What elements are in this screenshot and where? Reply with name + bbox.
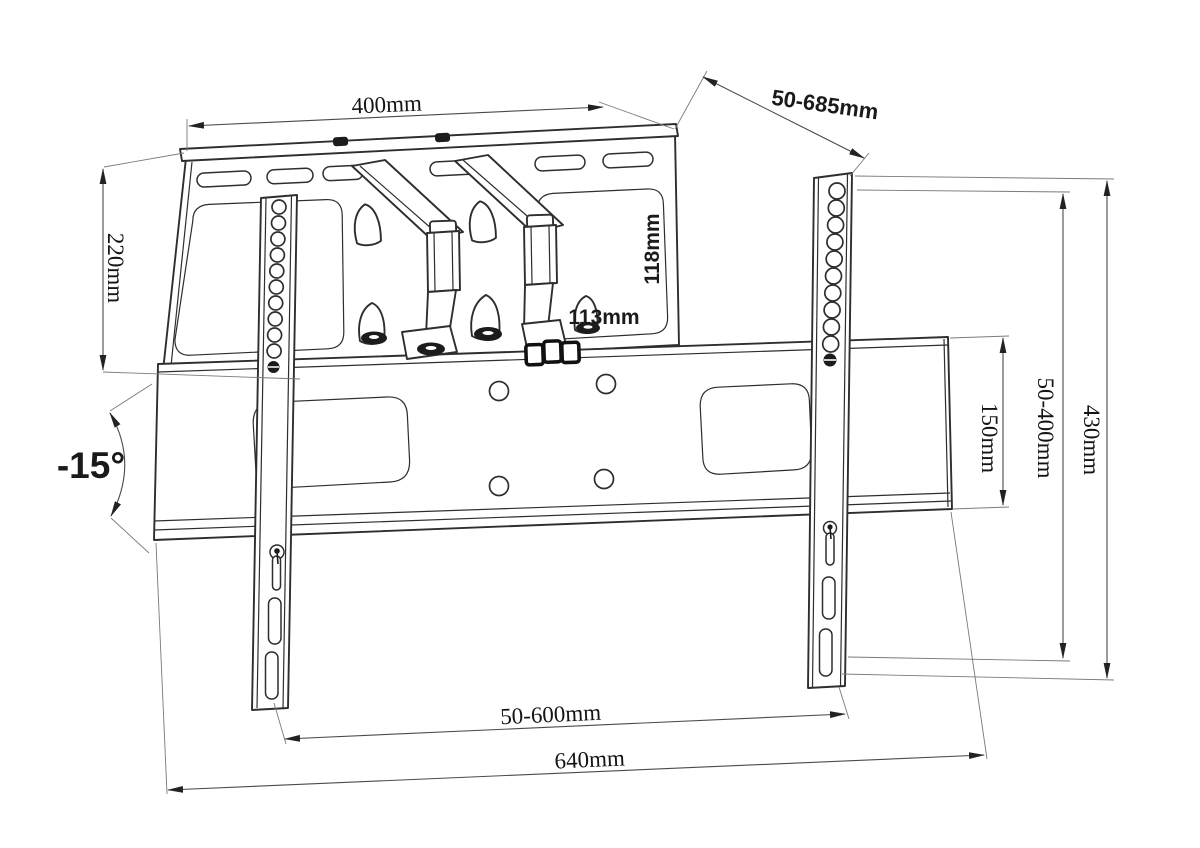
right-tv-bracket	[808, 173, 852, 688]
technical-drawing: 400mm 50-685mm 220mm 118mm 113mm 150mm	[0, 0, 1200, 848]
rail-hinge	[526, 340, 580, 365]
dim-label-plate-width: 400mm	[351, 90, 422, 118]
dim-label-rail-height: 150mm	[977, 403, 1002, 473]
dim-label-vesa-vertical-range: 50-400mm	[1033, 378, 1058, 479]
dim-label-arm-clearance-height: 118mm	[641, 213, 664, 284]
dim-label-vesa-horizontal-range: 50-600mm	[500, 700, 602, 730]
dim-label-tv-bracket-height: 430mm	[1079, 405, 1104, 475]
dim-label-plate-height: 220mm	[103, 233, 128, 303]
tv-mount-diagram: 400mm 50-685mm 220mm 118mm 113mm 150mm	[0, 0, 1200, 848]
dim-label-tilt-angle: -15°	[57, 445, 125, 486]
dim-label-arm-clearance-width: 113mm	[568, 306, 639, 329]
dim-label-rail-width: 640mm	[554, 745, 625, 773]
left-tv-bracket	[252, 195, 297, 710]
